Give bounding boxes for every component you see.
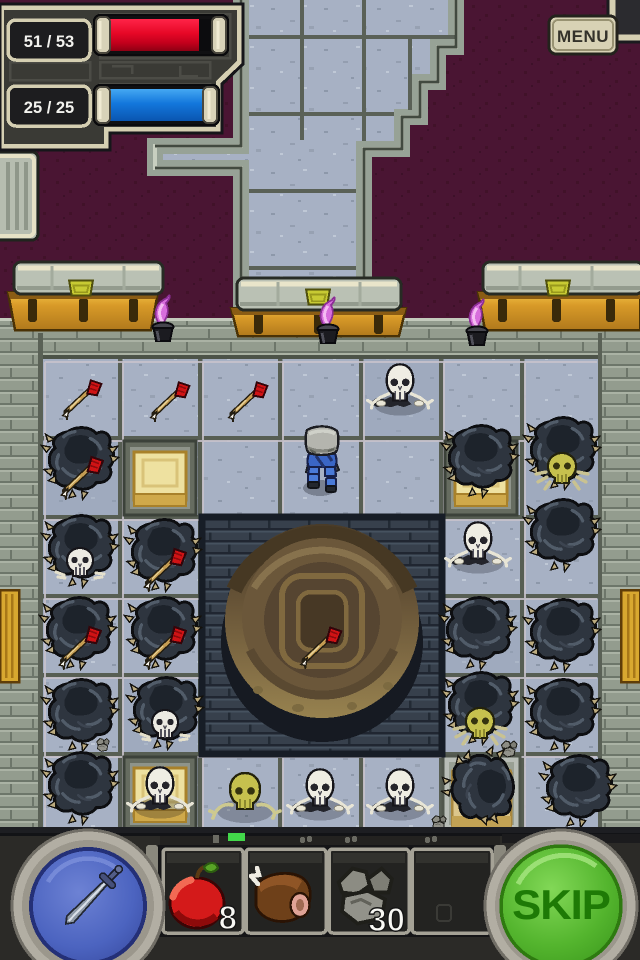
svg-text:8: 8: [219, 899, 237, 936]
svg-text:51 / 53: 51 / 53: [24, 33, 74, 51]
svg-text:MENU: MENU: [557, 27, 609, 46]
svg-text:30: 30: [368, 901, 405, 938]
svg-text:25 / 25: 25 / 25: [24, 99, 74, 117]
svg-text:SKIP: SKIP: [512, 882, 610, 929]
